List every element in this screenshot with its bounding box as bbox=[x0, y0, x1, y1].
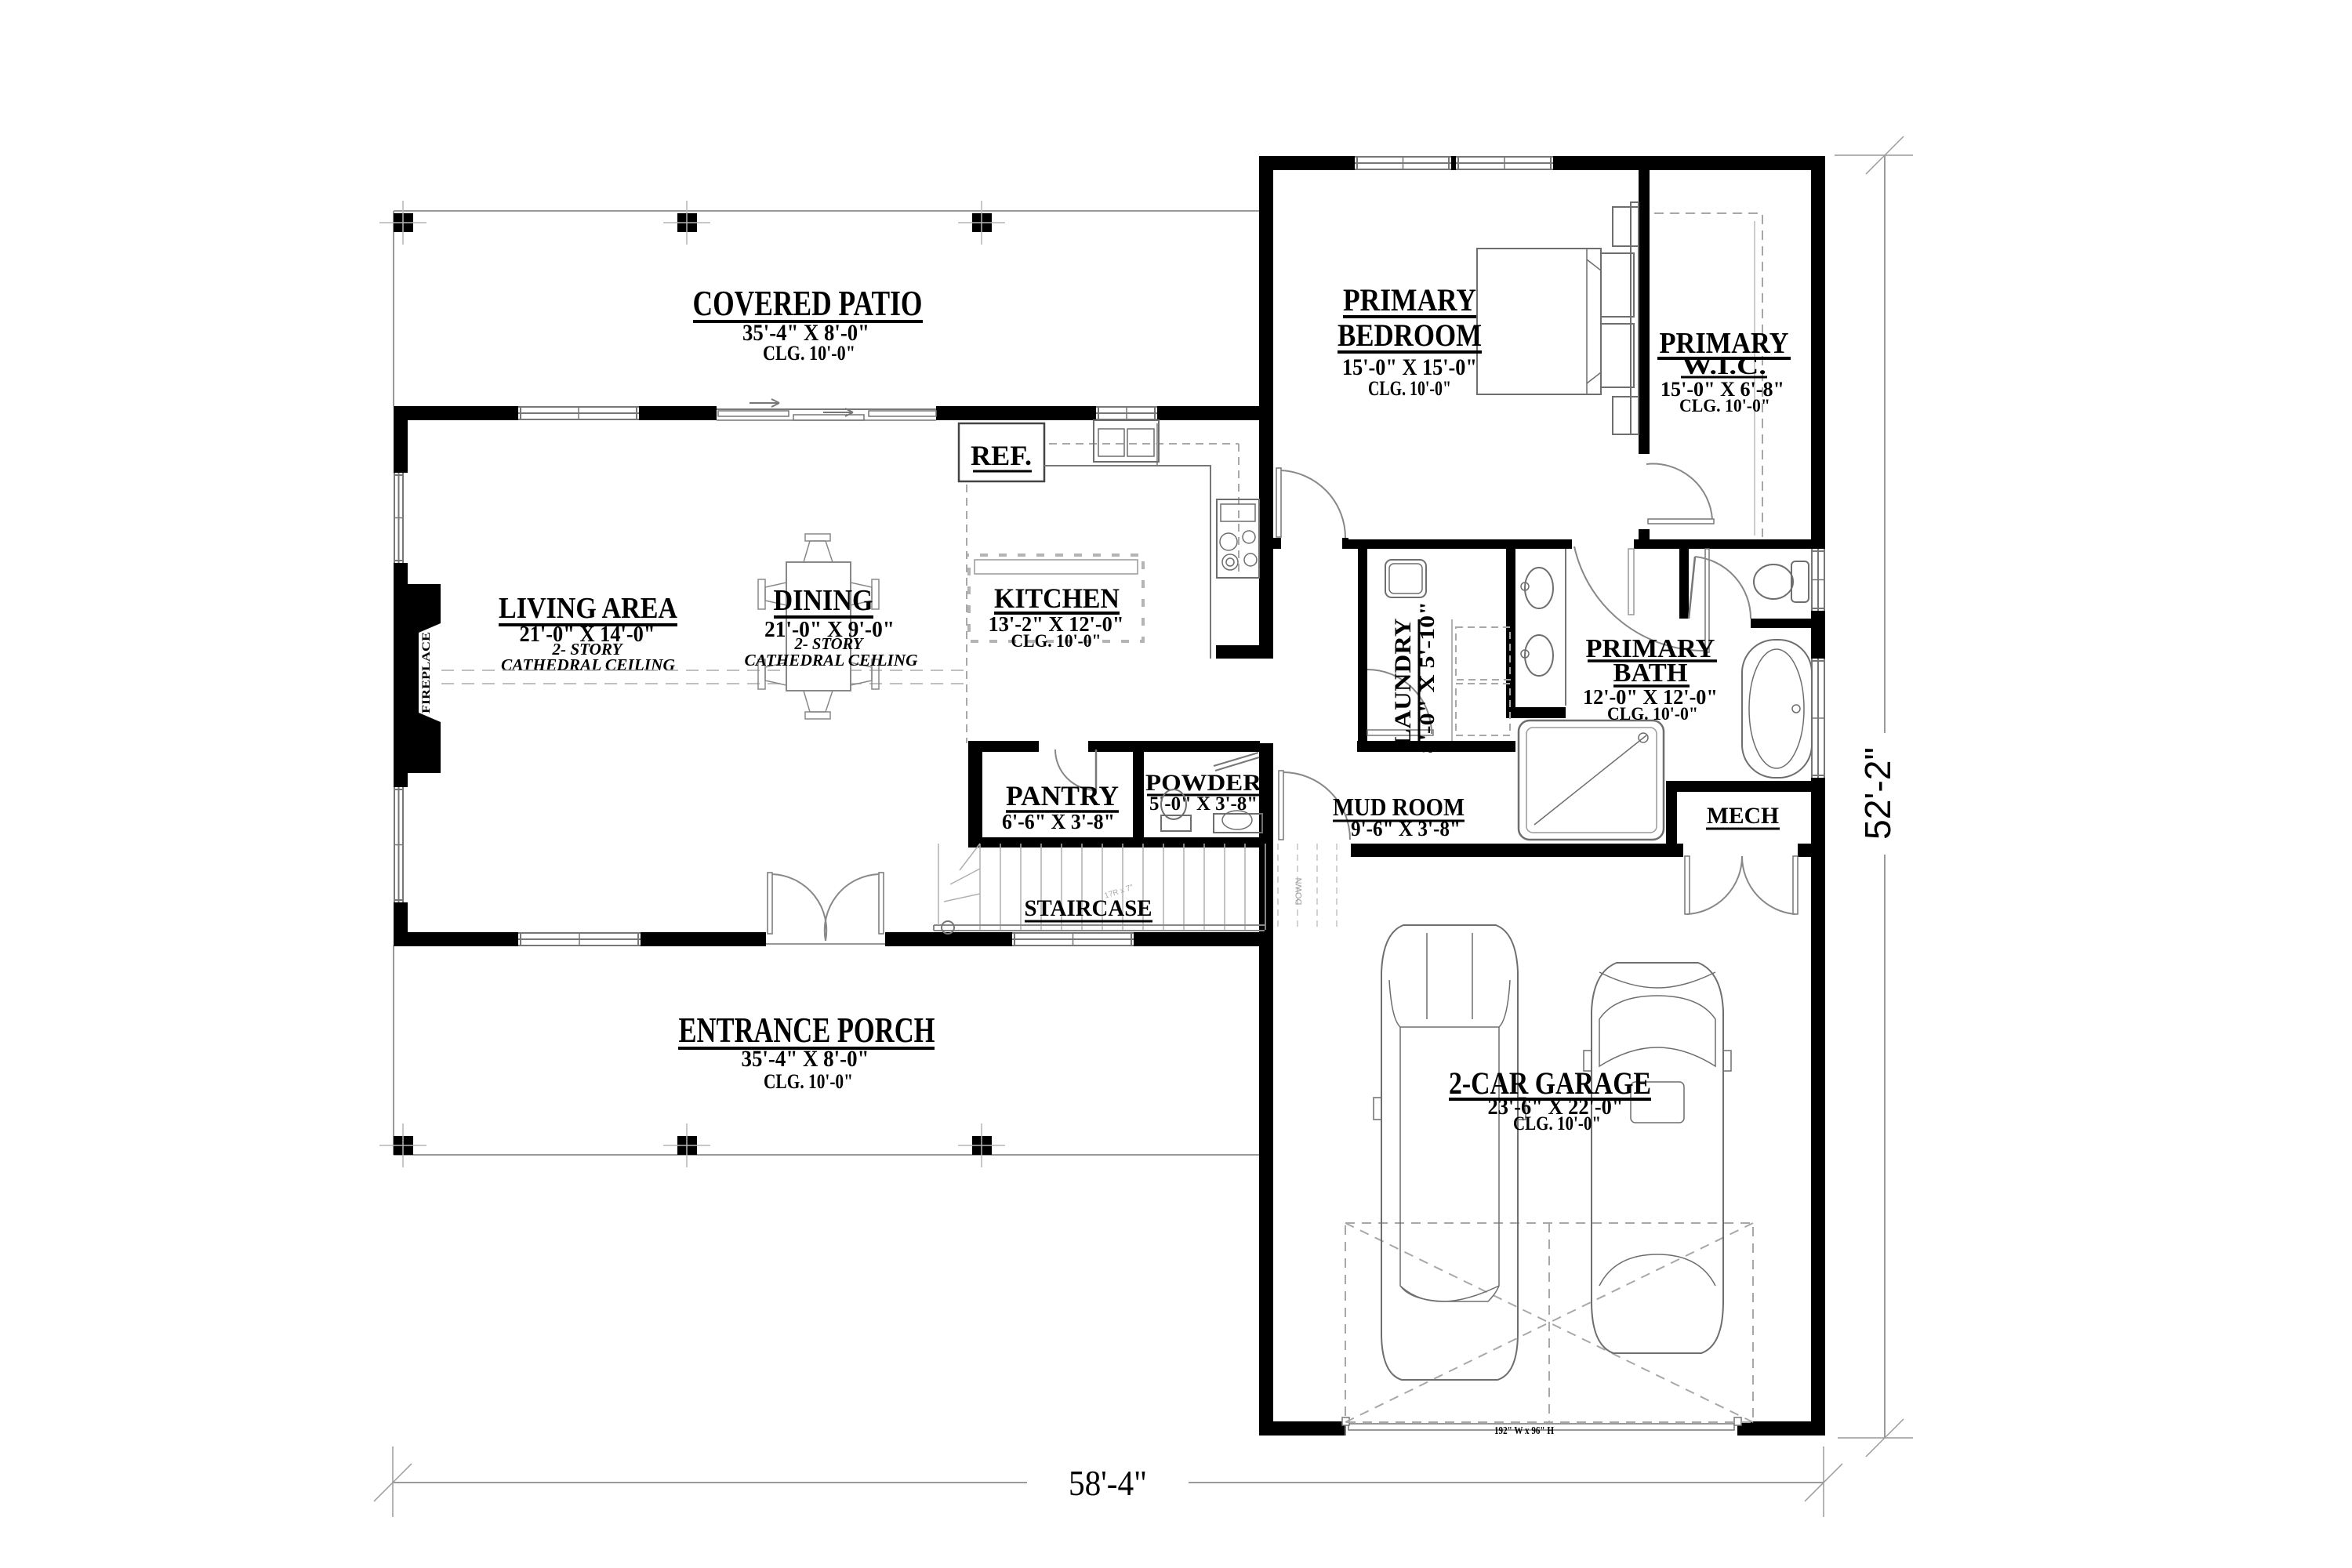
svg-text:9'-6" X 3'-8": 9'-6" X 3'-8" bbox=[1351, 817, 1461, 840]
svg-text:LIVING AREA: LIVING AREA bbox=[499, 592, 677, 625]
svg-text:DINING: DINING bbox=[774, 584, 873, 617]
svg-text:CLG. 10'-0": CLG. 10'-0" bbox=[763, 342, 855, 365]
svg-text:CLG. 10'-0": CLG. 10'-0" bbox=[1368, 377, 1451, 400]
svg-text:PANTRY: PANTRY bbox=[1006, 780, 1119, 811]
svg-text:35'-4" X 8'-0": 35'-4" X 8'-0" bbox=[742, 1046, 869, 1072]
svg-text:CLG. 10'-0": CLG. 10'-0" bbox=[1011, 631, 1102, 651]
svg-text:192" W x 96" H: 192" W x 96" H bbox=[1494, 1425, 1554, 1437]
svg-text:58'-4": 58'-4" bbox=[1069, 1463, 1147, 1503]
svg-text:CLG. 10'-0": CLG. 10'-0" bbox=[1679, 396, 1770, 416]
svg-text:MECH: MECH bbox=[1707, 803, 1779, 829]
svg-text:W.I.C.: W.I.C. bbox=[1682, 351, 1766, 379]
svg-text:8'-0" X 5'-10": 8'-0" X 5'-10" bbox=[1416, 601, 1439, 753]
svg-text:DOWN: DOWN bbox=[1294, 878, 1304, 906]
svg-text:BEDROOM: BEDROOM bbox=[1338, 318, 1482, 353]
svg-text:CLG. 10'-0": CLG. 10'-0" bbox=[1513, 1113, 1601, 1134]
svg-text:FIREPLACE: FIREPLACE bbox=[420, 632, 433, 713]
svg-text:PRIMARY: PRIMARY bbox=[1343, 282, 1476, 318]
svg-text:ENTRANCE PORCH: ENTRANCE PORCH bbox=[679, 1010, 935, 1050]
svg-text:COVERED PATIO: COVERED PATIO bbox=[693, 283, 923, 323]
svg-text:CATHEDRAL CEILING: CATHEDRAL CEILING bbox=[745, 651, 918, 670]
svg-text:POWDER: POWDER bbox=[1145, 770, 1261, 796]
svg-text:52'-2": 52'-2" bbox=[1857, 747, 1898, 840]
svg-text:BATH: BATH bbox=[1613, 659, 1688, 688]
svg-text:6'-6" X 3'-8": 6'-6" X 3'-8" bbox=[1002, 810, 1115, 833]
svg-text:REF.: REF. bbox=[971, 440, 1032, 471]
svg-text:CATHEDRAL CEILING: CATHEDRAL CEILING bbox=[501, 655, 675, 674]
svg-text:STAIRCASE: STAIRCASE bbox=[1025, 895, 1152, 921]
svg-text:KITCHEN: KITCHEN bbox=[994, 583, 1120, 614]
svg-text:CLG. 10'-0": CLG. 10'-0" bbox=[1607, 704, 1698, 724]
svg-text:CLG. 10'-0": CLG. 10'-0" bbox=[764, 1070, 853, 1093]
svg-text:LAUNDRY: LAUNDRY bbox=[1390, 618, 1416, 746]
